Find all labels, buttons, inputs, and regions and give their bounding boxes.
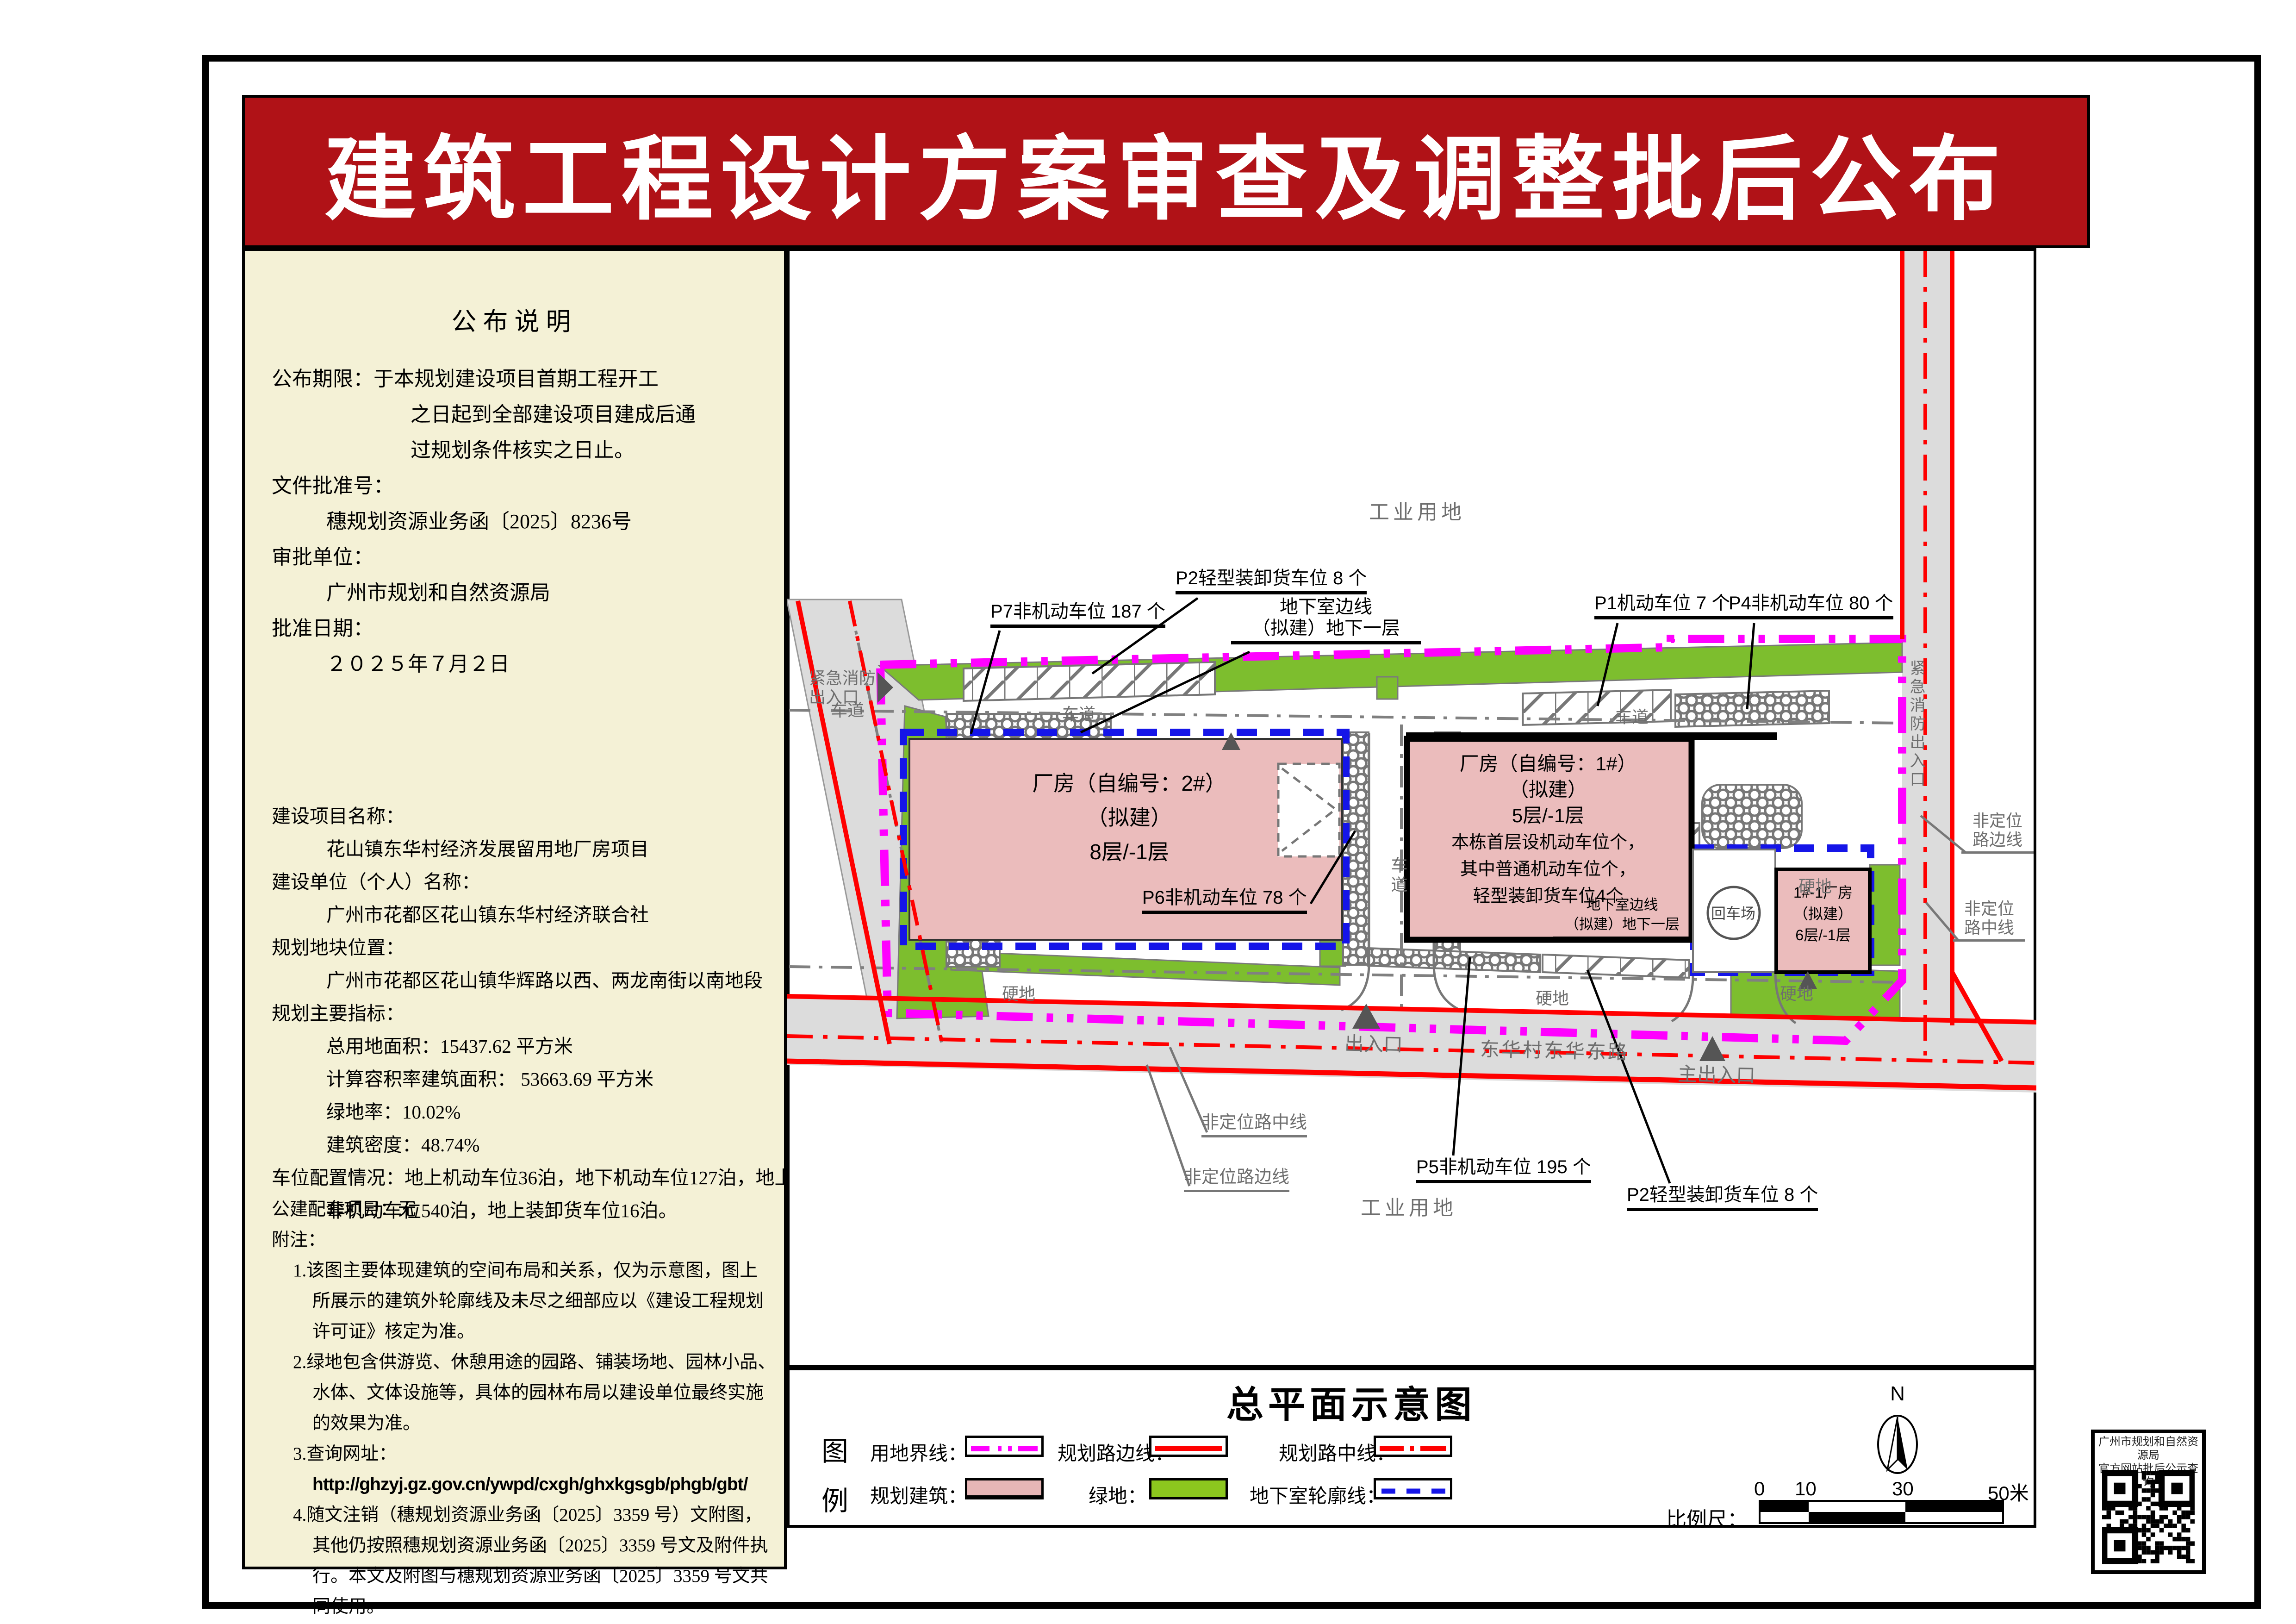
- poster-page: 建筑工程设计方案审查及调整批后公布 公布说明 公布期限：于本规划建设项目首期工程…: [0, 0, 2296, 1624]
- label-p6-bike-parking: P6非机动车位 78 个: [1142, 887, 1307, 914]
- panel-line: 附注：: [272, 1225, 774, 1255]
- label-building-2: 厂房（自编号：2#）（拟建）8层/-1层: [995, 766, 1263, 869]
- panel-line: 过规划条件核实之日止。: [272, 432, 774, 468]
- label-hard-ground-1: 硬地: [1002, 984, 1035, 1003]
- label-nonlocated-centerline-right: 非定位路中线: [1953, 899, 2025, 942]
- scale-tick-0: 0: [1754, 1478, 1765, 1500]
- panel-line: 规划地块位置：: [272, 931, 774, 964]
- label-p1-car-parking: P1机动车位 7 个: [1594, 593, 1730, 619]
- panel-line: 广州市花都区花山镇华辉路以西、两龙南街以南地段: [272, 964, 774, 997]
- label-main-entrance: 主出入口: [1678, 1063, 1756, 1087]
- page-title: 建筑工程设计方案审查及调整批后公布: [324, 105, 2008, 238]
- label-lane-2: 车道: [1062, 705, 1095, 724]
- label-nonlocated-centerline: 非定位路中线: [1201, 1113, 1307, 1137]
- panel-line: 计算容积率建筑面积： 53663.69 平方米: [272, 1063, 774, 1096]
- label-industrial-top: 工业用地: [1369, 501, 1465, 525]
- label-p7-bike-parking: P7非机动车位 187 个: [990, 601, 1165, 628]
- panel-line: 车位配置情况：地上机动车位36泊，地下机动车位127泊，地上: [272, 1162, 774, 1194]
- panel-line: 1.该图主要体现建筑的空间布局和关系，仅为示意图，图上: [272, 1255, 774, 1286]
- panel-line: 2.绿地包含供游览、休憩用途的园路、铺装场地、园林小品、: [272, 1347, 774, 1378]
- panel-section-approval: 公布期限：于本规划建设项目首期工程开工之日起到全部建设项目建成后通过规划条件核实…: [272, 361, 774, 682]
- panel-title: 公布说明: [245, 301, 784, 337]
- legend-label-building: 规划建筑：: [870, 1480, 967, 1509]
- panel-line: 公布期限：于本规划建设项目首期工程开工: [272, 361, 774, 397]
- label-p5-bike-parking: P5非机动车位 195 个: [1416, 1156, 1591, 1183]
- panel-line: 的效果为准。: [272, 1408, 774, 1439]
- panel-line: 之日起到全部建设项目建成后通: [272, 397, 774, 432]
- legend-label-underground: 地下室轮廓线：: [1250, 1480, 1386, 1509]
- label-building-1: 厂房（自编号：1#）（拟建）5层/-1层本栋首层设机动车位个，其中普通机动车位个…: [1417, 751, 1679, 909]
- panel-line: 审批单位：: [272, 539, 774, 575]
- panel-line: 规划主要指标：: [272, 997, 774, 1030]
- panel-line: 绿地率：10.02%: [272, 1096, 774, 1129]
- panel-line: 建设单位（个人）名称：: [272, 866, 774, 899]
- label-nonlocated-edgeline: 非定位路边线: [1184, 1168, 1289, 1192]
- label-fire-exit-right: 紧急消防出入口: [1907, 660, 1925, 812]
- label-p2-loading-bottom: P2轻型装卸货车位 8 个: [1627, 1184, 1818, 1211]
- scale-bar: [1759, 1500, 2004, 1524]
- panel-line: 4.随文注销（穗规划资源业务函〔2025〕3359 号）文附图，: [272, 1500, 774, 1530]
- legend-char-tu: 图: [821, 1430, 848, 1468]
- legend-char-li: 例: [821, 1479, 848, 1518]
- label-p4-bike-parking: P4非机动车位 80 个: [1729, 593, 1893, 619]
- scale-label: 比例尺：: [1666, 1503, 1748, 1532]
- label-turnaround: 回车场: [1707, 905, 1760, 922]
- panel-line: 其他仍按照穗规划资源业务函〔2025〕3359 号文及附件执: [272, 1530, 774, 1561]
- legend-label-boundary: 用地界线：: [870, 1438, 967, 1466]
- label-basement-line-top: 地下室边线（拟建）地下一层: [1231, 596, 1421, 644]
- announcement-panel: 公布说明 公布期限：于本规划建设项目首期工程开工之日起到全部建设项目建成后通过规…: [242, 248, 787, 1569]
- panel-section-notes: 公建配套项目：无附注：1.该图主要体现建筑的空间布局和关系，仅为示意图，图上所展…: [272, 1194, 774, 1622]
- panel-line: 公建配套项目：无: [272, 1194, 774, 1225]
- legend-swatch-underground: [1374, 1478, 1452, 1499]
- panel-line: 广州市花都区花山镇东华村经济联合社: [272, 899, 774, 931]
- label-nonlocated-edgeline-right: 非定位路边线: [1961, 811, 2034, 854]
- legend-swatch-boundary: [965, 1436, 1044, 1457]
- panel-line: 所展示的建筑外轮廓线及未尽之细部应以《建设工程规划: [272, 1286, 774, 1317]
- legend-swatch-building: [965, 1478, 1044, 1499]
- ramp-marking: [1278, 764, 1339, 856]
- legend-label-green: 绿地：: [1089, 1480, 1147, 1509]
- title-banner: 建筑工程设计方案审查及调整批后公布: [242, 95, 2090, 248]
- label-hard-ground-4: 硬地: [1780, 984, 1813, 1003]
- label-lane-1: 车道: [831, 700, 865, 720]
- panel-line: 建筑密度：48.74%: [272, 1129, 774, 1162]
- panel-section-project: 建设项目名称：花山镇东华村经济发展留用地厂房项目建设单位（个人）名称：广州市花都…: [272, 800, 774, 1227]
- legend-swatch-road-edge: [1149, 1436, 1228, 1457]
- label-basement-line-inner: 地下室边线（拟建）地下一层: [1553, 895, 1692, 940]
- label-hard-ground-2: 硬地: [1536, 989, 1569, 1008]
- label-p2-loading-top: P2轻型装卸货车位 8 个: [1176, 568, 1367, 594]
- panel-line: 许可证》核定为准。: [272, 1317, 774, 1347]
- panel-line: 花山镇东华村经济发展留用地厂房项目: [272, 833, 774, 866]
- label-entrance: 出入口: [1344, 1033, 1403, 1056]
- panel-line: 同使用。: [272, 1592, 774, 1622]
- panel-line: 总用地面积：15437.62 平方米: [272, 1030, 774, 1063]
- panel-line: 建设项目名称：: [272, 800, 774, 833]
- legend-swatch-green: [1149, 1478, 1228, 1499]
- panel-line: http://ghzyj.gz.gov.cn/ywpd/cxgh/ghxkgsg…: [272, 1469, 774, 1500]
- panel-line: 行。本文及附图与穗规划资源业务函〔2025〕3359 号文共: [272, 1561, 774, 1592]
- label-industrial-bottom: 工业用地: [1361, 1197, 1457, 1220]
- label-hard-ground-3: 硬地: [1798, 877, 1832, 896]
- panel-line: 批准日期：: [272, 611, 774, 646]
- label-lane-3: 车道: [1615, 707, 1649, 726]
- qr-block: 广州市规划和自然资源局官方网站批后公示查询: [2091, 1430, 2206, 1574]
- panel-line: 广州市规划和自然资源局: [272, 575, 774, 611]
- panel-line: 水体、文体设施等，具体的园林布局以建设单位最终实施: [272, 1378, 774, 1408]
- scale-tick-10: 10: [1795, 1478, 1817, 1500]
- label-road-name: 东华村东华东路: [1480, 1038, 1630, 1064]
- panel-line: 3.查询网址：: [272, 1439, 774, 1469]
- panel-line: 文件批准号：: [272, 468, 774, 504]
- plan-title: 总平面示意图: [1185, 1375, 1518, 1429]
- panel-line: 穗规划资源业务函〔2025〕8236号: [272, 504, 774, 539]
- panel-line: ２０２５年７月２日: [272, 646, 774, 682]
- north-arrow: N: [1865, 1382, 1930, 1484]
- svg-text:N: N: [1890, 1382, 1905, 1405]
- label-lane-mid-vertical: 车道: [1388, 856, 1407, 912]
- qr-code: [2102, 1464, 2195, 1570]
- legend-swatch-road-center: [1374, 1436, 1452, 1457]
